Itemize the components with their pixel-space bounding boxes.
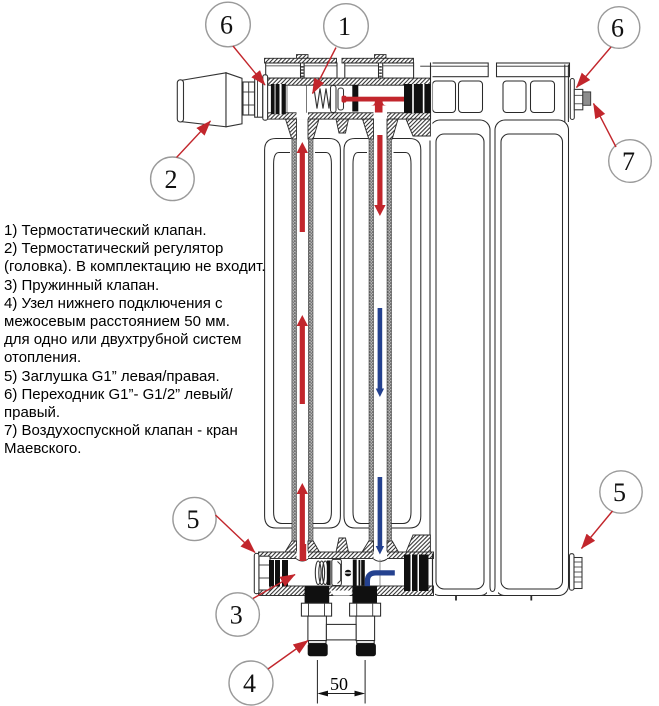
svg-text:6: 6	[611, 14, 624, 43]
svg-text:5: 5	[613, 478, 626, 507]
svg-text:5: 5	[187, 505, 200, 534]
svg-text:2: 2	[165, 165, 178, 194]
svg-text:1: 1	[338, 12, 351, 41]
svg-text:3: 3	[230, 601, 243, 630]
svg-text:6: 6	[220, 11, 233, 40]
svg-text:50: 50	[330, 674, 348, 694]
svg-text:7: 7	[622, 147, 635, 176]
svg-text:4: 4	[243, 669, 256, 698]
